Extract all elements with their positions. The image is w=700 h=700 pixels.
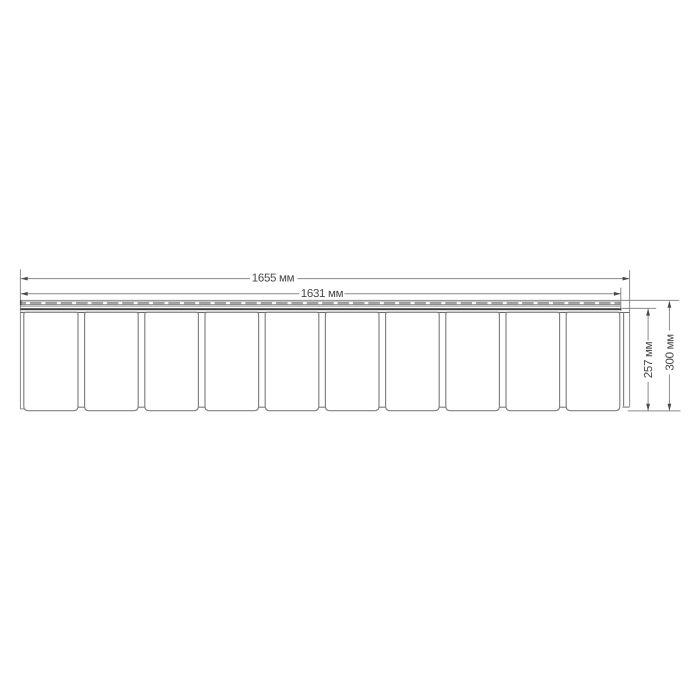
svg-text:257 мм: 257 мм — [643, 341, 655, 378]
svg-text:300 мм: 300 мм — [664, 334, 676, 371]
svg-text:1655 мм: 1655 мм — [252, 273, 295, 285]
svg-text:1631 мм: 1631 мм — [301, 288, 344, 300]
